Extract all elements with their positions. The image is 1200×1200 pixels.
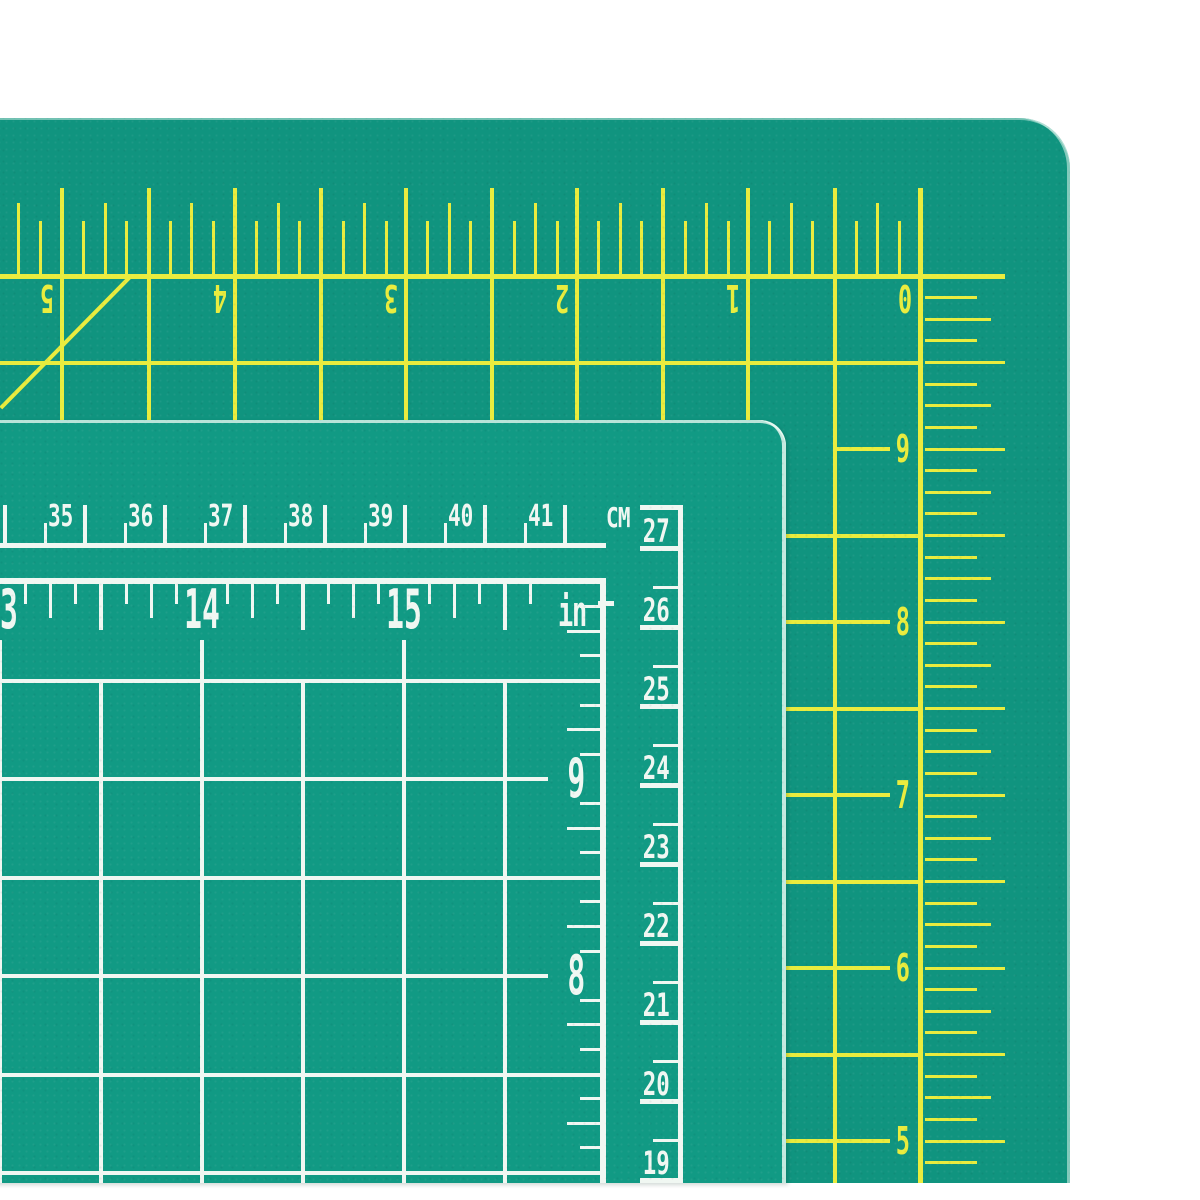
grid-line-vertical bbox=[918, 188, 923, 1183]
ruler-tick bbox=[428, 584, 431, 604]
ruler-tick bbox=[925, 469, 977, 472]
ruler-tick bbox=[925, 794, 1005, 797]
ruler-tick bbox=[925, 621, 1005, 624]
ruler-number-right: 6 bbox=[890, 952, 910, 984]
grid-line-vertical bbox=[402, 640, 406, 1183]
ruler-tick bbox=[925, 1053, 1005, 1056]
cm-number-vertical: 23 bbox=[640, 833, 669, 861]
ruler-tick bbox=[580, 704, 600, 707]
grid-line-horizontal bbox=[836, 447, 890, 451]
ruler-tick bbox=[653, 902, 678, 905]
ruler-tick bbox=[190, 203, 193, 276]
ruler-tick bbox=[363, 203, 366, 276]
ruler-tick bbox=[653, 981, 678, 984]
ruler-tick bbox=[580, 654, 600, 657]
ruler-tick bbox=[925, 296, 977, 299]
ruler-tick bbox=[478, 584, 481, 604]
cm-unit-label: CM bbox=[606, 504, 630, 532]
ruler-tick bbox=[385, 221, 388, 276]
ruler-tick bbox=[925, 642, 977, 645]
inch-number-vertical: 8 bbox=[559, 952, 585, 1000]
grid-line-vertical bbox=[200, 640, 204, 1183]
ruler-tick bbox=[768, 221, 771, 276]
grid-line-vertical bbox=[503, 680, 507, 1183]
grid-line-horizontal bbox=[0, 1073, 600, 1077]
ruler-tick bbox=[567, 1122, 600, 1125]
grid-line-horizontal bbox=[0, 974, 548, 978]
ruler-tick bbox=[251, 584, 254, 618]
ruler-tick bbox=[925, 729, 977, 732]
ruler-tick bbox=[925, 383, 977, 386]
product-photo-cutting-mats: 54321098765 CM in 3536373839404113141598… bbox=[0, 0, 1200, 1200]
ruler-tick bbox=[597, 221, 600, 276]
grid-line-horizontal bbox=[0, 777, 548, 781]
cm-number: 37 bbox=[207, 504, 234, 530]
ruler-tick bbox=[925, 880, 1005, 883]
cm-number: 39 bbox=[367, 504, 394, 530]
inch-number: 15 bbox=[382, 586, 426, 634]
ruler-tick bbox=[925, 837, 991, 840]
ruler-tick bbox=[567, 1023, 600, 1026]
ruler-tick bbox=[925, 707, 1005, 710]
ruler-tick bbox=[503, 584, 507, 630]
ruler-tick bbox=[104, 203, 107, 276]
ruler-tick bbox=[175, 584, 178, 604]
ruler-tick bbox=[277, 203, 280, 276]
ruler-tick bbox=[212, 221, 215, 276]
ruler-tick bbox=[925, 448, 1005, 451]
ruler-tick bbox=[925, 923, 991, 926]
cm-number-vertical: 26 bbox=[640, 596, 669, 624]
cm-number: 36 bbox=[127, 504, 154, 530]
ruler-tick bbox=[298, 221, 301, 276]
ruler-tick bbox=[580, 851, 600, 854]
ruler-tick bbox=[925, 426, 977, 429]
ruler-tick bbox=[925, 577, 991, 580]
ruler-tick bbox=[925, 815, 977, 818]
ruler-number-top: 5 bbox=[39, 283, 55, 313]
cm-number-vertical: 20 bbox=[640, 1070, 669, 1098]
ruler-tick bbox=[925, 1161, 977, 1164]
inch-number: 13 bbox=[0, 586, 22, 634]
cm-number: 40 bbox=[447, 504, 474, 530]
small-mat-markings: CM in 3536373839404113141598272625242322… bbox=[0, 420, 786, 1183]
ruler-tick bbox=[99, 584, 103, 630]
ruler-tick bbox=[567, 827, 600, 830]
ruler-tick bbox=[925, 361, 1005, 364]
ruler-tick bbox=[377, 584, 380, 604]
cm-number: 35 bbox=[47, 504, 74, 530]
ruler-tick bbox=[653, 1139, 678, 1142]
ruler-tick bbox=[898, 221, 901, 276]
ruler-tick bbox=[513, 221, 516, 276]
ruler-tick bbox=[790, 203, 793, 276]
ruler-tick bbox=[74, 584, 77, 604]
ruler-tick bbox=[925, 1075, 977, 1078]
ruler-tick bbox=[925, 1031, 977, 1034]
ruler-number-top: 0 bbox=[897, 283, 913, 313]
ruler-tick bbox=[556, 221, 559, 276]
ruler-tick bbox=[342, 221, 345, 276]
ruler-tick bbox=[653, 823, 678, 826]
grid-line-vertical bbox=[99, 680, 103, 1183]
ruler-tick bbox=[925, 685, 977, 688]
bias-line bbox=[0, 276, 131, 410]
ruler-tick bbox=[169, 221, 172, 276]
ruler-tick bbox=[684, 221, 687, 276]
grid-line-vertical bbox=[0, 640, 2, 1183]
ruler-tick bbox=[876, 203, 879, 276]
cm-number-vertical: 24 bbox=[640, 754, 669, 782]
ruler-tick bbox=[469, 221, 472, 276]
grid-line-vertical bbox=[301, 680, 305, 1183]
ruler-tick bbox=[925, 664, 991, 667]
ruler-tick bbox=[653, 1060, 678, 1063]
ruler-tick bbox=[925, 491, 991, 494]
ruler-tick bbox=[453, 584, 456, 618]
ruler-tick bbox=[811, 221, 814, 276]
inch-unit-label: in bbox=[558, 591, 586, 633]
ruler-tick bbox=[529, 584, 532, 604]
grid-line-horizontal bbox=[0, 876, 600, 880]
ruler-tick bbox=[17, 203, 20, 276]
ruler-tick bbox=[619, 203, 622, 276]
cm-number: 38 bbox=[287, 504, 314, 530]
grid-line-horizontal bbox=[0, 361, 920, 365]
ruler-tick bbox=[925, 858, 977, 861]
ruler-tick bbox=[563, 505, 567, 545]
ruler-baseline bbox=[0, 543, 606, 548]
small-cutting-mat: CM in 3536373839404113141598272625242322… bbox=[0, 420, 786, 1183]
ruler-tick bbox=[567, 728, 600, 731]
ruler-tick bbox=[925, 967, 1005, 970]
ruler-tick bbox=[925, 772, 977, 775]
ruler-tick bbox=[580, 1146, 600, 1149]
ruler-number-top: 1 bbox=[725, 283, 741, 313]
ruler-tick bbox=[640, 221, 643, 276]
ruler-tick bbox=[352, 584, 355, 618]
ruler-tick bbox=[640, 505, 678, 510]
inch-number-vertical: 9 bbox=[559, 755, 585, 803]
ruler-tick bbox=[534, 203, 537, 276]
ruler-tick bbox=[426, 221, 429, 276]
ruler-tick bbox=[580, 1048, 600, 1051]
ruler-tick bbox=[855, 221, 858, 276]
ruler-tick bbox=[567, 630, 600, 633]
ruler-tick bbox=[925, 534, 1005, 537]
ruler-line bbox=[678, 505, 683, 1183]
ruler-tick bbox=[448, 203, 451, 276]
ruler-tick bbox=[125, 221, 128, 276]
ruler-tick bbox=[323, 505, 327, 545]
cm-number-vertical: 22 bbox=[640, 912, 669, 940]
grid-line-vertical bbox=[833, 188, 837, 1183]
ruler-tick bbox=[39, 221, 42, 276]
ruler-number-top: 3 bbox=[383, 283, 399, 313]
ruler-tick bbox=[925, 556, 977, 559]
ruler-tick bbox=[276, 584, 279, 604]
ruler-tick bbox=[653, 665, 678, 668]
cm-number-vertical: 21 bbox=[640, 991, 669, 1019]
ruler-tick bbox=[653, 744, 678, 747]
ruler-tick bbox=[925, 1010, 991, 1013]
ruler-tick bbox=[24, 584, 27, 604]
ruler-tick bbox=[580, 605, 600, 608]
cm-number: 41 bbox=[527, 504, 554, 530]
grid-line-horizontal bbox=[0, 679, 600, 683]
ruler-tick bbox=[925, 599, 977, 602]
ruler-tick bbox=[925, 945, 977, 948]
ruler-tick bbox=[483, 505, 487, 545]
ruler-line bbox=[600, 583, 606, 1183]
ruler-tick bbox=[82, 221, 85, 276]
ruler-number-right: 5 bbox=[890, 1125, 910, 1157]
ruler-tick bbox=[226, 584, 229, 604]
ruler-number-right: 7 bbox=[890, 779, 910, 811]
ruler-tick bbox=[403, 505, 407, 545]
ruler-tick bbox=[580, 900, 600, 903]
ruler-tick bbox=[125, 584, 128, 604]
ruler-tick bbox=[925, 902, 977, 905]
ruler-tick bbox=[925, 750, 991, 753]
ruler-tick bbox=[727, 221, 730, 276]
ruler-tick bbox=[49, 584, 52, 618]
ruler-tick bbox=[83, 505, 87, 545]
ruler-tick bbox=[567, 925, 600, 928]
cm-number-vertical: 19 bbox=[640, 1149, 669, 1177]
ruler-number-top: 2 bbox=[554, 283, 570, 313]
ruler-tick bbox=[925, 1118, 977, 1121]
ruler-number-right: 9 bbox=[890, 433, 910, 465]
ruler-tick bbox=[925, 988, 977, 991]
ruler-tick bbox=[925, 1140, 1005, 1143]
cm-number-vertical: 25 bbox=[640, 675, 669, 703]
ruler-tick bbox=[255, 221, 258, 276]
ruler-tick bbox=[243, 505, 247, 545]
inch-number: 14 bbox=[180, 586, 224, 634]
grid-line-horizontal bbox=[0, 1171, 600, 1175]
ruler-tick bbox=[580, 1097, 600, 1100]
ruler-tick bbox=[653, 586, 678, 589]
ruler-tick bbox=[925, 318, 991, 321]
ruler-tick bbox=[3, 505, 7, 545]
ruler-tick bbox=[327, 584, 330, 604]
ruler-tick bbox=[705, 203, 708, 276]
ruler-number-top: 4 bbox=[212, 283, 228, 313]
ruler-tick bbox=[925, 512, 977, 515]
ruler-tick bbox=[925, 1096, 991, 1099]
cm-number-vertical: 27 bbox=[640, 517, 669, 545]
ruler-tick bbox=[163, 505, 167, 545]
ruler-number-right: 8 bbox=[890, 606, 910, 638]
ruler-tick bbox=[301, 584, 305, 630]
ruler-tick bbox=[925, 339, 977, 342]
ruler-tick bbox=[925, 404, 991, 407]
ruler-tick bbox=[150, 584, 153, 618]
